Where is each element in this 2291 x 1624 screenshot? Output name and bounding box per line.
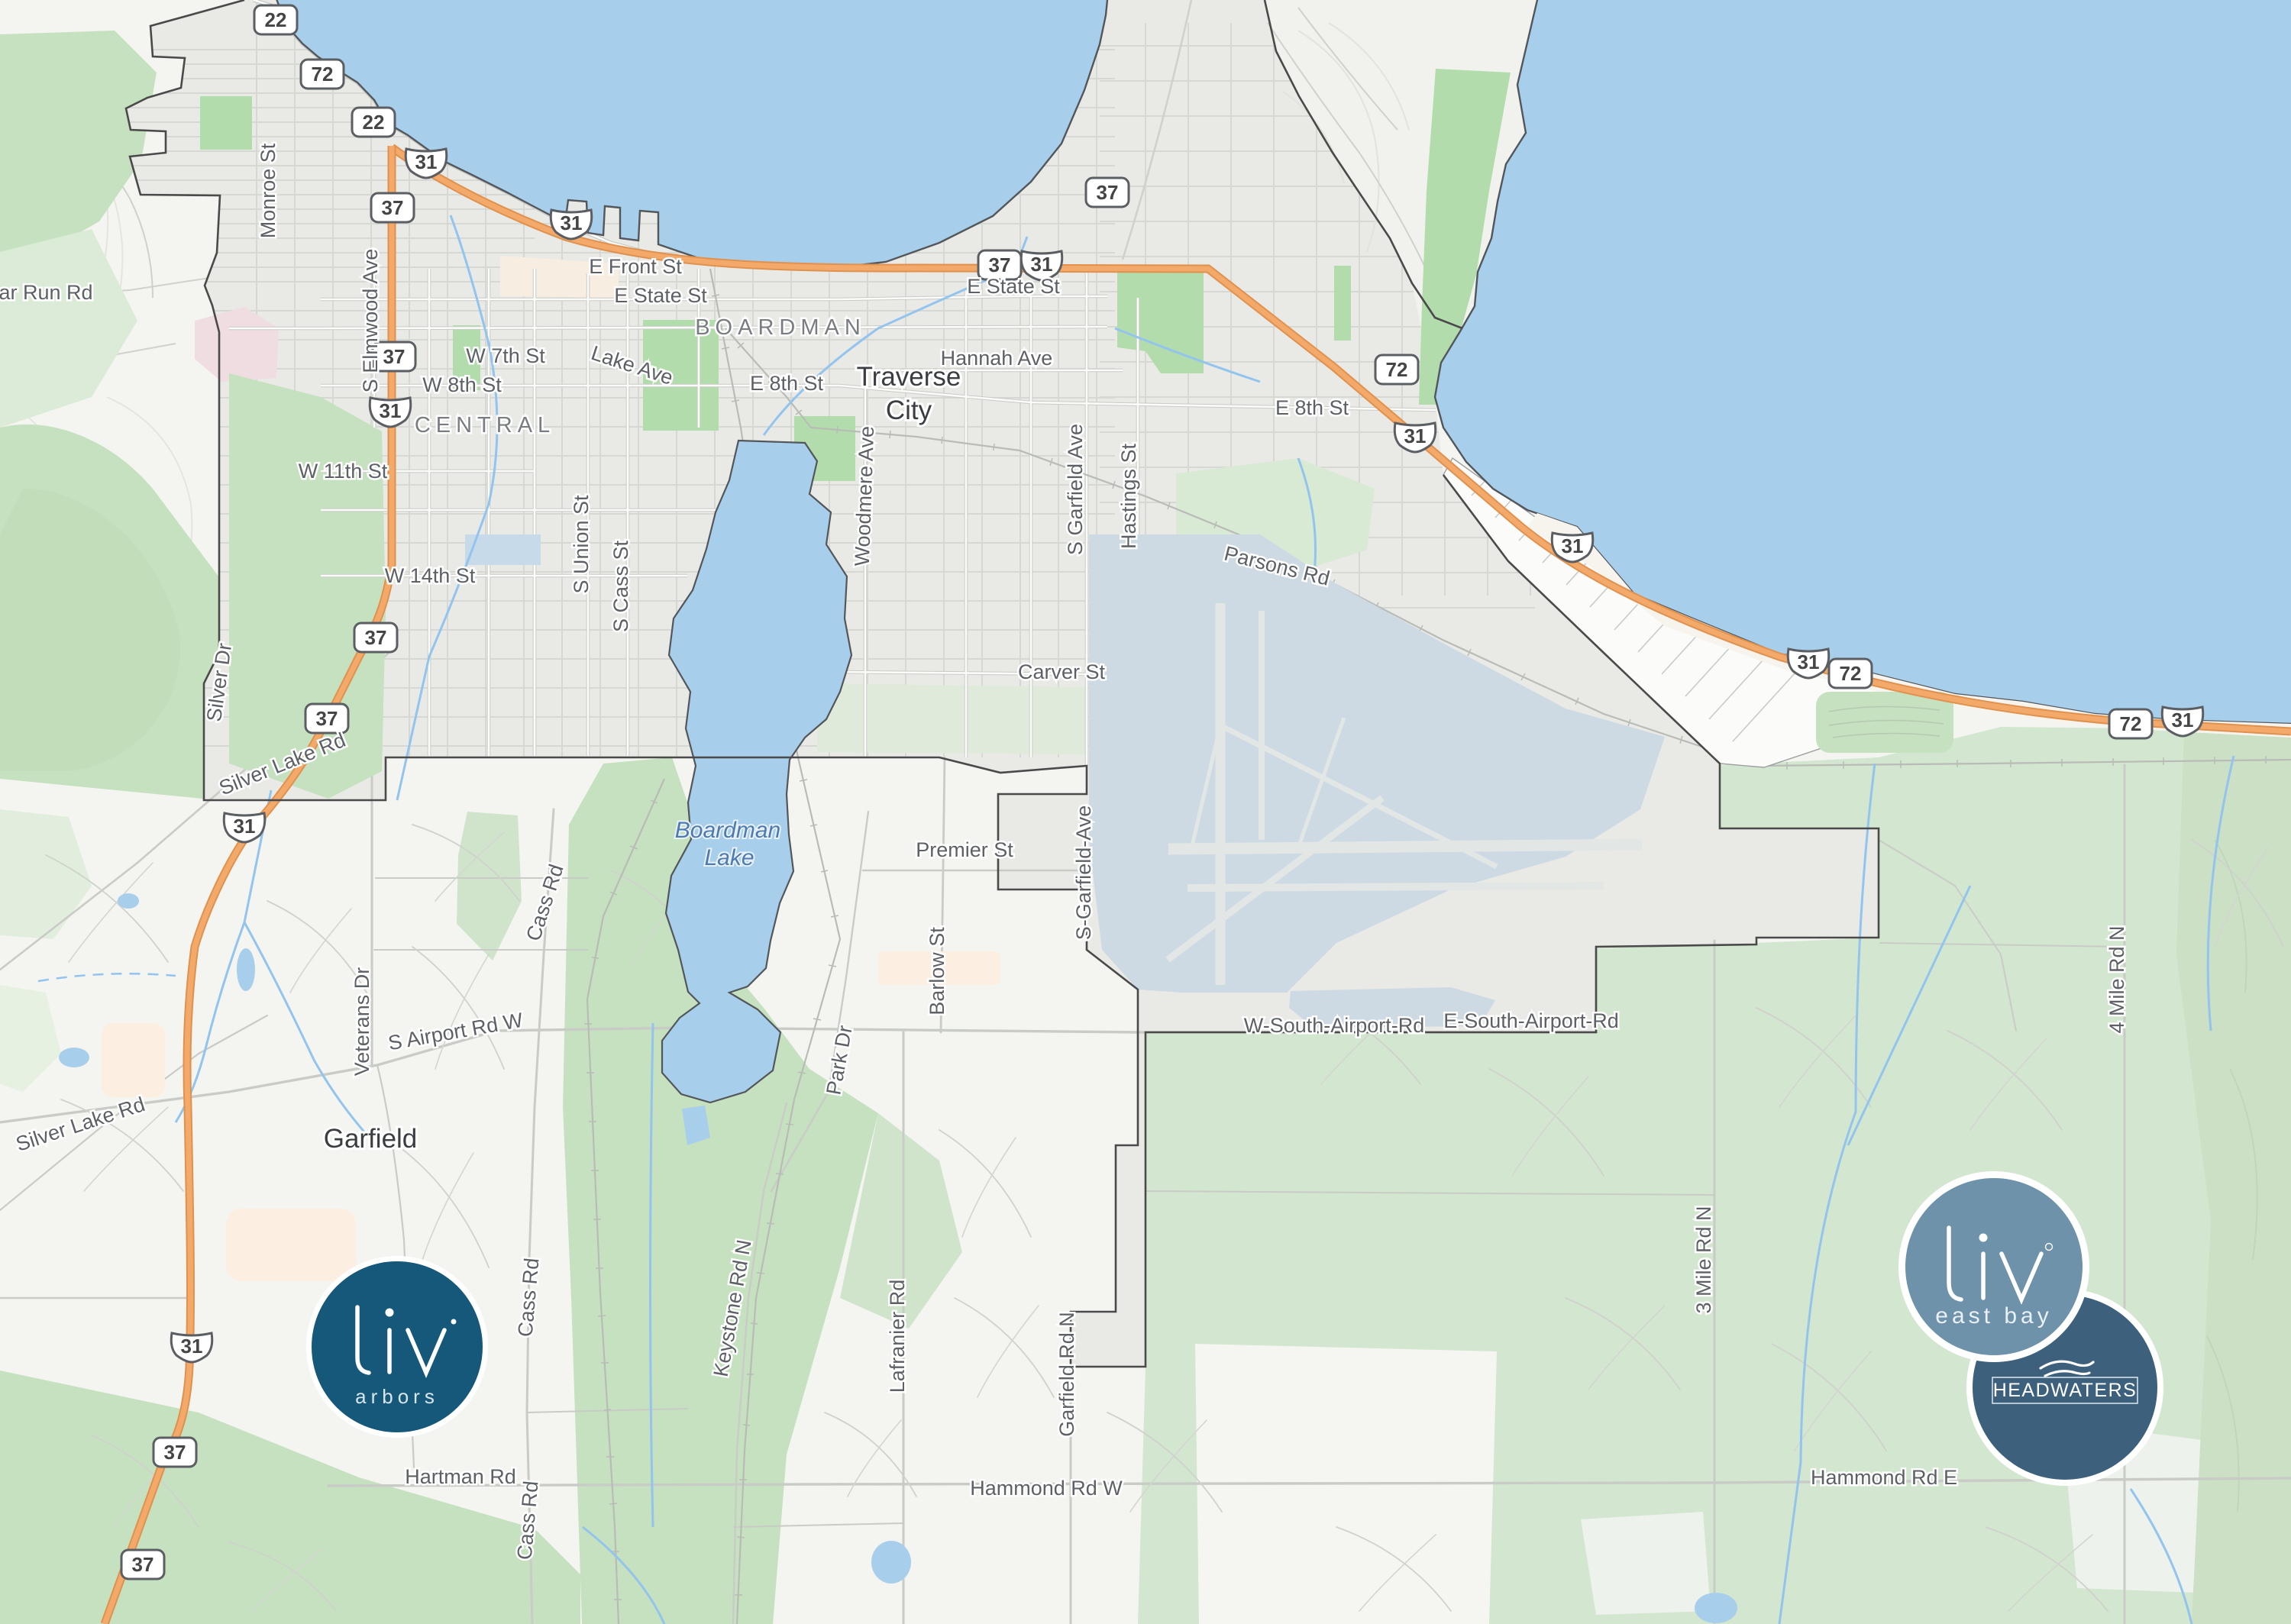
svg-text:31: 31 [181,1335,203,1358]
svg-text:37: 37 [164,1441,186,1464]
svg-text:S Elmwood Ave: S Elmwood Ave [359,249,382,393]
svg-text:Carver St: Carver St [1018,660,1106,683]
svg-text:W-South-Airport-Rd: W-South-Airport-Rd [1244,1014,1425,1037]
svg-text:3 Mile Rd N: 3 Mile Rd N [1692,1206,1715,1313]
svg-text:Garfield: Garfield [324,1124,418,1154]
svg-text:E State St: E State St [614,284,707,307]
svg-text:37: 37 [316,707,338,730]
svg-text:Monroe St: Monroe St [257,143,280,238]
svg-text:E 8th St: E 8th St [750,372,824,395]
svg-text:Hammond Rd E: Hammond Rd E [1811,1466,1957,1489]
svg-text:W 7th St: W 7th St [466,344,545,367]
svg-text:Barlow St: Barlow St [926,927,948,1015]
svg-text:31: 31 [1404,425,1427,447]
svg-text:31: 31 [234,815,256,838]
svg-text:W 11th St: W 11th St [299,460,388,483]
svg-text:Veterans Dr: Veterans Dr [351,967,373,1077]
svg-text:72: 72 [2120,712,2142,735]
svg-text:Lafranier Rd: Lafranier Rd [886,1280,909,1393]
svg-text:Hammond Rd W: Hammond Rd W [970,1477,1123,1500]
svg-text:S Cass St: S Cass St [609,540,632,632]
svg-text:Hastings St: Hastings St [1117,443,1140,549]
svg-text:31: 31 [1798,651,1820,673]
svg-text:S-Garfield-Ave: S-Garfield-Ave [1072,806,1095,941]
svg-text:BOARDMAN: BOARDMAN [695,315,866,340]
svg-text:72: 72 [1386,358,1408,381]
svg-text:W 14th St: W 14th St [385,564,476,587]
svg-text:37: 37 [1097,181,1119,204]
svg-text:31: 31 [415,150,438,173]
svg-text:City: City [886,396,932,425]
svg-text:W 8th St: W 8th St [422,373,502,396]
svg-text:HEADWATERS: HEADWATERS [1993,1380,2138,1401]
svg-text:37: 37 [383,345,406,368]
svg-text:Garfield Rd N: Garfield Rd N [1055,1312,1078,1437]
svg-text:E 8th St: E 8th St [1275,396,1349,419]
svg-text:22: 22 [363,111,385,134]
svg-text:37: 37 [365,626,387,649]
svg-text:4 Mile Rd N: 4 Mile Rd N [2105,925,2128,1033]
svg-text:37: 37 [989,253,1011,276]
svg-text:22: 22 [265,8,287,31]
svg-text:Boardman: Boardman [675,818,780,843]
svg-text:arbors: arbors [355,1385,439,1408]
svg-text:Hartman Rd: Hartman Rd [405,1465,516,1488]
svg-text:37: 37 [382,196,404,219]
svg-text:31: 31 [1562,534,1584,557]
svg-text:S Union St: S Union St [570,495,593,594]
svg-text:Woodmere Ave: Woodmere Ave [851,425,878,567]
svg-text:31: 31 [380,399,402,422]
svg-text:Hannah Ave: Hannah Ave [941,347,1053,370]
svg-text:31: 31 [561,211,583,234]
svg-text:east bay: east bay [1935,1303,2052,1329]
svg-text:E State St: E State St [967,275,1060,298]
svg-text:ar Run Rd: ar Run Rd [0,281,93,304]
svg-text:31: 31 [1031,253,1053,276]
svg-text:Lake: Lake [704,845,754,870]
svg-text:CENTRAL: CENTRAL [415,413,555,437]
svg-text:Premier St: Premier St [916,838,1013,861]
svg-text:72: 72 [312,63,334,86]
svg-text:31: 31 [2172,709,2194,731]
svg-text:E-South-Airport-Rd: E-South-Airport-Rd [1443,1009,1619,1032]
svg-text:S Garfield Ave: S Garfield Ave [1064,424,1087,555]
svg-text:72: 72 [1840,662,1862,685]
svg-text:E Front St: E Front St [589,255,682,278]
svg-text:37: 37 [132,1553,154,1576]
